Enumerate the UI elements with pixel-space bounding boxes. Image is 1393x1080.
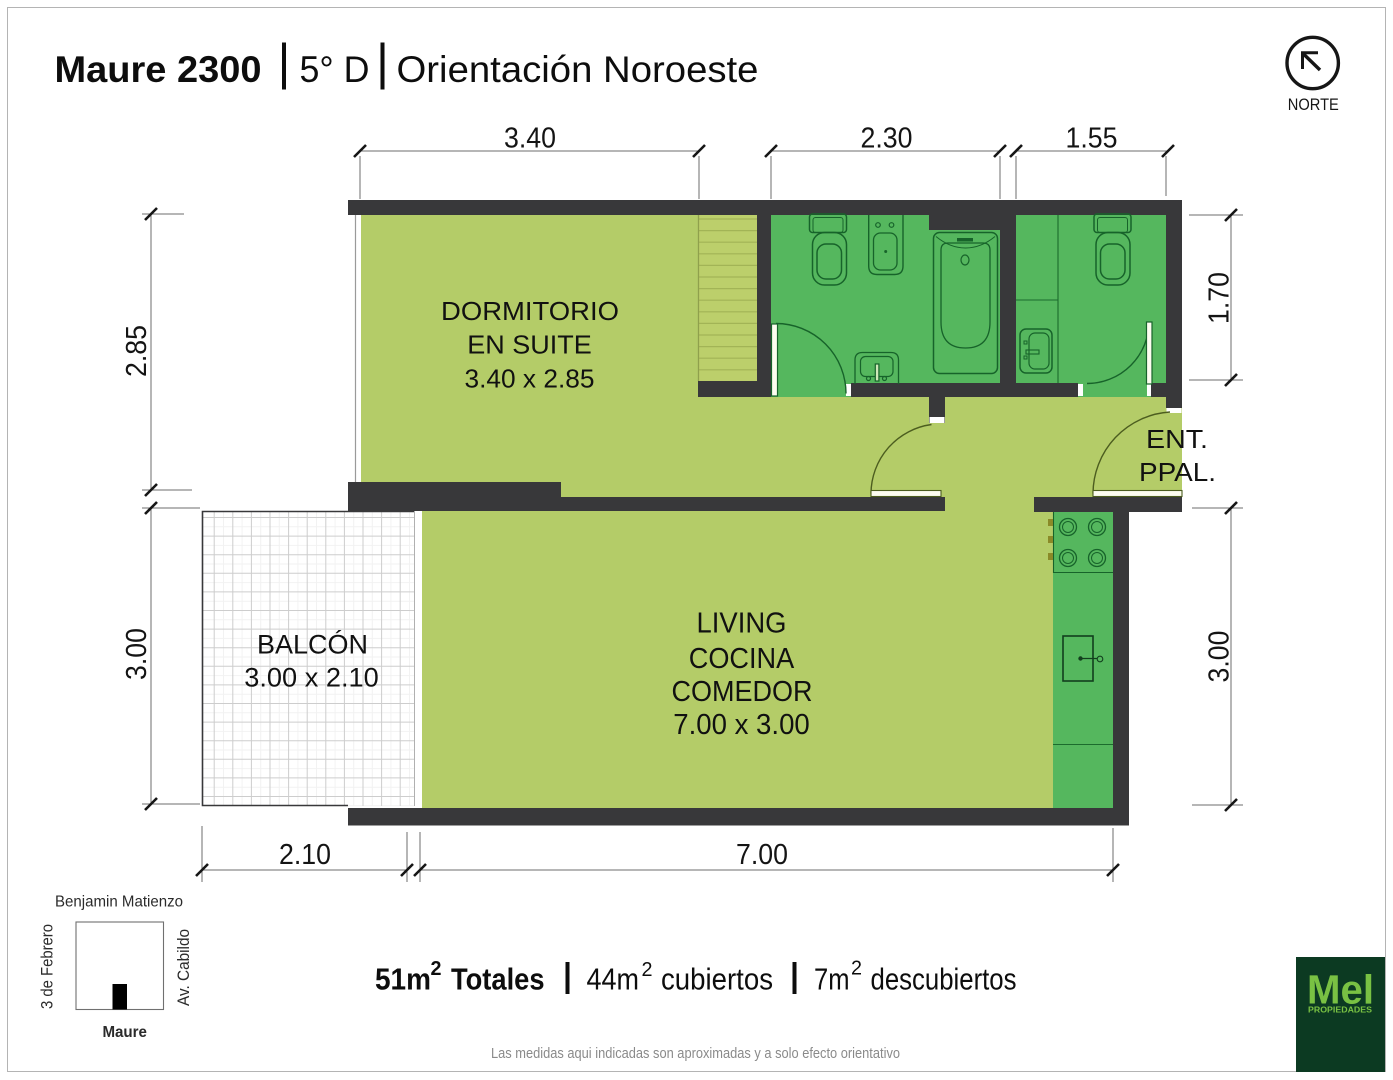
- svg-text:5° D: 5° D: [300, 48, 370, 90]
- svg-text:3.00 x 2.10: 3.00 x 2.10: [244, 663, 379, 693]
- svg-text:44m: 44m: [587, 962, 640, 997]
- svg-text:DORMITORIO: DORMITORIO: [441, 296, 619, 326]
- svg-text:ENT.: ENT.: [1146, 424, 1208, 454]
- svg-text:Maure: Maure: [102, 1024, 147, 1041]
- svg-text:Las medidas aqui indicadas son: Las medidas aqui indicadas son aproximad…: [491, 1045, 900, 1062]
- svg-text:7.00: 7.00: [736, 839, 788, 871]
- svg-text:EN SUITE: EN SUITE: [467, 330, 592, 360]
- svg-text:2: 2: [851, 958, 862, 980]
- svg-text:2: 2: [642, 959, 653, 981]
- svg-text:7m: 7m: [814, 962, 850, 997]
- svg-text:COMEDOR: COMEDOR: [672, 676, 813, 708]
- svg-text:cubiertos: cubiertos: [661, 962, 773, 997]
- svg-text:3 de Febrero: 3 de Febrero: [39, 924, 57, 1009]
- svg-text:2: 2: [431, 958, 442, 980]
- svg-text:BALCÓN: BALCÓN: [257, 629, 368, 660]
- svg-text:Totales: Totales: [451, 962, 545, 997]
- svg-text:Orientación Noroeste: Orientación Noroeste: [397, 48, 759, 90]
- svg-text:2.10: 2.10: [279, 839, 331, 871]
- svg-text:3.40: 3.40: [504, 123, 556, 155]
- svg-text:3.00: 3.00: [121, 628, 153, 680]
- svg-text:Av. Cabildo: Av. Cabildo: [175, 929, 193, 1006]
- svg-text:3.00: 3.00: [1204, 631, 1236, 683]
- svg-text:Benjamin Matienzo: Benjamin Matienzo: [55, 894, 183, 911]
- svg-text:3.40 x 2.85: 3.40 x 2.85: [465, 364, 595, 394]
- svg-text:7.00 x 3.00: 7.00 x 3.00: [673, 709, 810, 741]
- svg-text:PROPIEDADES: PROPIEDADES: [1308, 1005, 1372, 1015]
- svg-text:Maure 2300: Maure 2300: [55, 48, 262, 90]
- svg-text:descubiertos: descubiertos: [871, 962, 1017, 997]
- svg-text:PPAL.: PPAL.: [1139, 457, 1216, 487]
- svg-text:1.55: 1.55: [1066, 123, 1118, 155]
- svg-text:NORTE: NORTE: [1288, 96, 1339, 114]
- svg-text:1.70: 1.70: [1204, 272, 1236, 324]
- svg-text:2.30: 2.30: [861, 123, 913, 155]
- svg-text:51m: 51m: [375, 962, 431, 997]
- svg-text:2.85: 2.85: [121, 325, 153, 377]
- svg-text:COCINA: COCINA: [689, 643, 795, 675]
- svg-text:LIVING: LIVING: [697, 608, 787, 640]
